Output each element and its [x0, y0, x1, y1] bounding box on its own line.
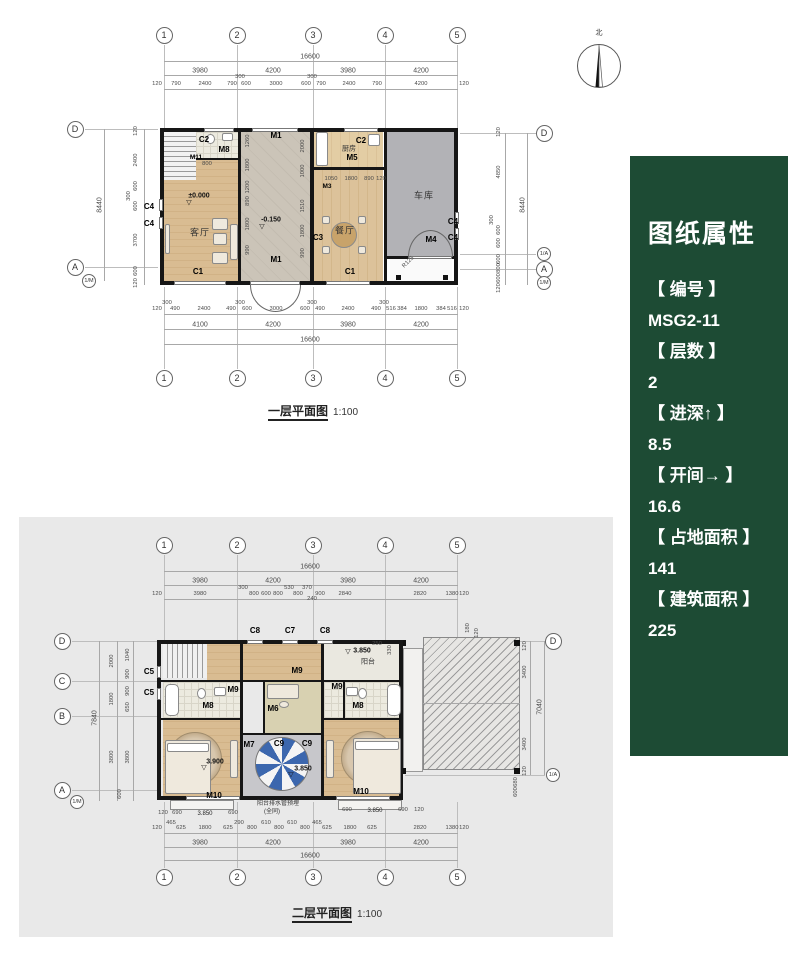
annotation: 800 — [247, 826, 257, 832]
window-c7 — [282, 640, 298, 644]
grid-line — [457, 802, 458, 868]
annotation: 290 — [234, 821, 244, 827]
annotation: 阳台排水管预埋 — [257, 801, 299, 807]
annotation: 4200 — [413, 840, 429, 847]
annotation: 120 — [152, 592, 162, 598]
annotation: 2820 — [414, 592, 427, 598]
floor-plan-sheet: 一层平面图1:100 1234512345DA1/MD1/AA1/M北16600… — [0, 0, 800, 965]
annotation: 300 — [238, 586, 248, 592]
annotation: M6 — [267, 705, 278, 713]
annotation: M8 — [202, 702, 213, 710]
bathtub — [387, 684, 401, 716]
annotation: ▽ — [345, 649, 350, 656]
property-label: 【 进深↑ 】 — [648, 398, 780, 429]
annotation: 680 — [514, 777, 520, 787]
annotation: 690 — [172, 811, 182, 817]
annotation: 600 — [118, 789, 124, 799]
annotation: 625 — [176, 826, 186, 832]
annotation: M7 — [243, 741, 254, 749]
grid-bubble: 1/A — [546, 768, 560, 782]
annotation: M10 — [206, 792, 222, 800]
grid-bubble: A — [54, 782, 71, 799]
annotation: M9 — [227, 686, 238, 694]
annotation: 1800 — [344, 826, 357, 832]
plan2-title-text: 二层平面图 — [292, 906, 352, 923]
desk — [230, 740, 238, 778]
annotation: M8 — [352, 702, 363, 710]
annotation: 250 — [372, 642, 382, 648]
annotation: C5 — [144, 689, 154, 697]
annotation: 465 — [166, 821, 176, 827]
annotation: 800 — [293, 592, 303, 598]
annotation: 625 — [223, 826, 233, 832]
grid-bubble: 1 — [156, 537, 173, 554]
grid-line — [385, 802, 386, 868]
property-label: 【 层数 】 — [648, 336, 780, 367]
annotation: 4200 — [265, 840, 281, 847]
annotation: 120 — [414, 808, 424, 814]
dim-line — [530, 641, 531, 775]
pillow — [167, 743, 209, 752]
annotation: C9 — [302, 740, 312, 748]
annotation: 2840 — [339, 592, 352, 598]
annotation: C7 — [285, 627, 295, 635]
annotation: 625 — [322, 826, 332, 832]
grid-line — [72, 641, 157, 642]
annotation: 3980 — [192, 578, 208, 585]
interior-wall — [243, 680, 321, 682]
grid-bubble: 3 — [305, 537, 322, 554]
dim-line — [99, 641, 100, 801]
annotation: 120 — [523, 641, 529, 651]
study-chair — [279, 701, 289, 708]
annotation: 3400 — [523, 738, 529, 751]
annotation: 690 — [228, 811, 238, 817]
grid-line — [72, 790, 157, 791]
roof-ridge-line — [423, 703, 520, 704]
property-value: 2 — [648, 367, 780, 398]
annotation: 600 — [261, 592, 271, 598]
grid-bubble: 4 — [377, 869, 394, 886]
grid-bubble: 2 — [229, 537, 246, 554]
annotation: 1380 — [446, 826, 459, 832]
annotation: 120 — [523, 766, 529, 776]
annotation: 7840 — [92, 710, 99, 726]
interior-wall — [161, 680, 240, 682]
annotation: 3.850 — [294, 766, 312, 773]
interior-wall — [343, 682, 345, 718]
annotation: C9 — [274, 740, 284, 748]
grid-bubble: B — [54, 708, 71, 725]
grid-line — [72, 681, 157, 682]
property-label: 【 建筑面积 】 — [648, 584, 780, 615]
grid-bubble: 1 — [156, 869, 173, 886]
annotation: 1040 — [126, 649, 132, 662]
annotation: 120 — [459, 592, 469, 598]
annotation: 800 — [300, 826, 310, 832]
window-c5 — [157, 666, 161, 678]
toilet — [197, 688, 206, 699]
annotation: 3.850 — [353, 648, 371, 655]
grid-bubble: C — [54, 673, 71, 690]
annotation: 16600 — [300, 564, 319, 571]
pillow — [355, 741, 399, 750]
study-desk — [267, 684, 299, 699]
annotation: 7040 — [537, 699, 544, 715]
column — [514, 768, 520, 774]
annotation: 3980 — [340, 578, 356, 585]
dim-line — [164, 860, 458, 861]
annotation: 800 — [274, 826, 284, 832]
grid-line — [164, 555, 165, 640]
interior-wall — [243, 733, 321, 735]
annotation: 120 — [475, 628, 481, 638]
annotation: 2000 — [110, 655, 116, 668]
balcony-ledge — [170, 800, 234, 810]
annotation: 2820 — [414, 826, 427, 832]
desk — [326, 740, 334, 778]
interior-wall — [161, 718, 240, 720]
toilet — [358, 688, 367, 699]
annotation: 370 — [302, 586, 312, 592]
property-value: 8.5 — [648, 429, 780, 460]
annotation: C5 — [144, 668, 154, 676]
annotation: 3980 — [194, 592, 207, 598]
grid-bubble: 3 — [305, 869, 322, 886]
annotation: (全同) — [264, 809, 280, 815]
annotation: 3.850 — [197, 811, 212, 817]
annotation: 1800 — [199, 826, 212, 832]
annotation: 3980 — [192, 840, 208, 847]
annotation: 900 — [126, 686, 132, 696]
annotation: 1800 — [110, 693, 116, 706]
annotation: 阳台 — [361, 659, 375, 666]
grid-bubble: 5 — [449, 537, 466, 554]
dim-line — [164, 847, 458, 848]
annotation: 240 — [307, 597, 317, 603]
annotation: 800 — [249, 592, 259, 598]
plan2-title: 二层平面图1:100 — [292, 904, 382, 922]
annotation: M9 — [331, 683, 342, 691]
annotation: 16600 — [300, 853, 319, 860]
grid-bubble: 5 — [449, 869, 466, 886]
bathtub — [165, 684, 179, 716]
annotation: M9 — [291, 667, 302, 675]
property-value: 16.6 — [648, 491, 780, 522]
annotation: 180 — [466, 623, 472, 633]
dim-line — [117, 641, 118, 801]
annotation: 4200 — [265, 578, 281, 585]
annotation: 3800 — [110, 751, 116, 764]
annotation: 120 — [152, 826, 162, 832]
grid-line — [385, 555, 386, 640]
annotation: C8 — [320, 627, 330, 635]
annotation: M10 — [353, 788, 369, 796]
grid-bubble: 2 — [229, 869, 246, 886]
annotation: 1380 — [446, 592, 459, 598]
annotation: 600 — [514, 787, 520, 797]
annotation: 610 — [287, 821, 297, 827]
property-value: 225 — [648, 615, 780, 646]
window-c8 — [317, 640, 333, 644]
annotation: 120 — [158, 811, 168, 817]
dim-line — [164, 833, 458, 834]
property-list: 【 编号 】 MSG2-11 【 层数 】 2 【 进深↑ 】 8.5 【 开间… — [648, 274, 780, 646]
property-value: MSG2-11 — [648, 305, 780, 336]
interior-wall — [321, 644, 324, 797]
annotation: 650 — [126, 702, 132, 712]
annotation: 120 — [459, 826, 469, 832]
terrace-strip — [403, 648, 423, 772]
interior-wall — [324, 718, 403, 720]
property-label: 【 编号 】 — [648, 274, 780, 305]
property-value: 141 — [648, 553, 780, 584]
grid-bubble: D — [54, 633, 71, 650]
grid-bubble: 1/M — [70, 795, 84, 809]
dim-line — [133, 641, 134, 801]
grid-line — [237, 555, 238, 640]
annotation: 3400 — [523, 666, 529, 679]
annotation: 800 — [273, 592, 283, 598]
annotation: 690 — [342, 808, 352, 814]
annotation: 3.850 — [367, 808, 382, 814]
annotation: 690 — [398, 808, 408, 814]
annotation: 4200 — [413, 578, 429, 585]
plan2-scale: 1:100 — [357, 909, 382, 920]
annotation: 900 — [126, 669, 132, 679]
grid-bubble: D — [545, 633, 562, 650]
sink — [214, 687, 226, 696]
sink — [346, 687, 358, 696]
interior-wall — [263, 682, 265, 733]
annotation: 3.900 — [206, 759, 224, 766]
column — [514, 640, 520, 646]
annotation: 610 — [261, 821, 271, 827]
drawing-properties-panel: 图纸属性 【 编号 】 MSG2-11 【 层数 】 2 【 进深↑ 】 8.5… — [630, 156, 788, 756]
annotation: 465 — [312, 821, 322, 827]
annotation: 625 — [367, 826, 377, 832]
grid-bubble: 4 — [377, 537, 394, 554]
property-label: 【 占地面积 】 — [648, 522, 780, 553]
property-label: 【 开间→ 】 — [648, 460, 780, 491]
panel-title: 图纸属性 — [648, 214, 756, 250]
annotation: 3800 — [126, 751, 132, 764]
annotation: C8 — [250, 627, 260, 635]
annotation: ▽ — [288, 772, 293, 779]
annotation: 3980 — [340, 840, 356, 847]
window-c8 — [247, 640, 263, 644]
annotation: ▽ — [201, 765, 206, 772]
annotation: 900 — [315, 592, 325, 598]
grid-line — [72, 716, 157, 717]
dim-line — [164, 571, 458, 572]
window-c5 — [157, 688, 161, 700]
annotation: 330 — [388, 645, 394, 655]
dim-line — [544, 641, 545, 775]
interior-wall — [240, 644, 243, 797]
